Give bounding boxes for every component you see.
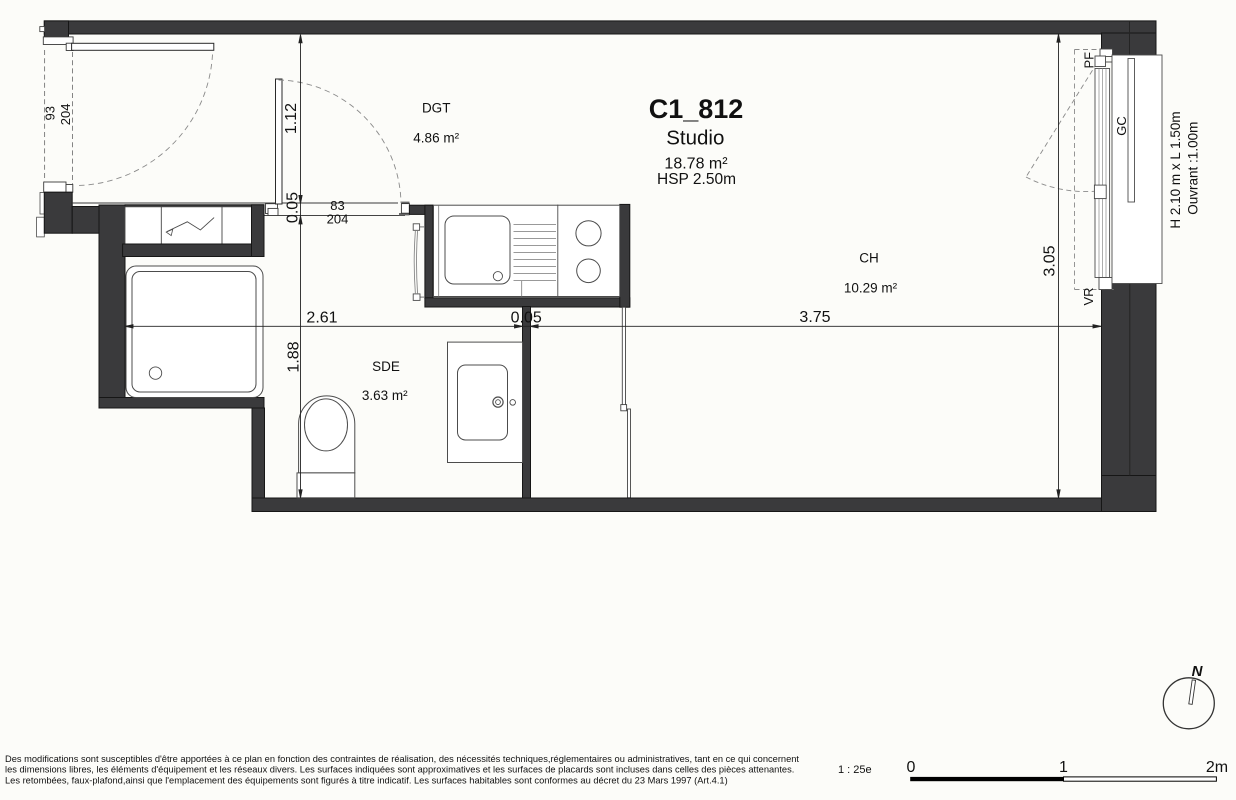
svg-text:Des modifications sont suscept: Des modifications sont susceptibles d'êt…: [5, 754, 799, 764]
svg-text:H 2.10 m x L 1.50m: H 2.10 m x L 1.50m: [1168, 111, 1183, 228]
svg-text:PF: PF: [1082, 52, 1097, 69]
svg-text:1.88: 1.88: [285, 341, 302, 372]
svg-text:0.05: 0.05: [285, 192, 302, 223]
svg-text:les dimensions libres, les élé: les dimensions libres, les éléments d'éq…: [5, 765, 794, 775]
svg-text:4.86 m²: 4.86 m²: [413, 131, 459, 146]
svg-text:1: 1: [1059, 759, 1068, 776]
svg-text:CH: CH: [859, 251, 879, 266]
svg-text:18.78 m²: 18.78 m²: [664, 155, 728, 172]
svg-text:Studio: Studio: [666, 127, 724, 150]
svg-text:2m: 2m: [1206, 759, 1228, 776]
svg-text:HSP 2.50m: HSP 2.50m: [657, 171, 736, 188]
svg-text:10.29 m²: 10.29 m²: [844, 281, 898, 296]
svg-text:2.61: 2.61: [306, 310, 337, 327]
svg-text:C1_812: C1_812: [649, 94, 744, 124]
svg-text:SDE: SDE: [372, 359, 400, 374]
svg-text:Les retombées, faux-plafond,ai: Les retombées, faux-plafond,ainsi que l'…: [5, 775, 728, 785]
svg-text:DGT: DGT: [422, 101, 451, 116]
svg-text:Ouvrant :1.00m: Ouvrant :1.00m: [1186, 122, 1201, 215]
svg-text:VR: VR: [1081, 287, 1096, 305]
svg-text:204: 204: [327, 212, 349, 227]
svg-text:0.05: 0.05: [511, 310, 542, 327]
svg-text:3.63 m²: 3.63 m²: [362, 388, 408, 403]
svg-text:1.12: 1.12: [283, 103, 300, 134]
svg-text:1 : 25e: 1 : 25e: [838, 764, 872, 776]
svg-text:GC: GC: [1114, 116, 1129, 136]
svg-text:N: N: [1192, 663, 1204, 680]
svg-text:93: 93: [43, 106, 58, 120]
svg-text:204: 204: [58, 104, 73, 126]
svg-text:3.75: 3.75: [799, 309, 830, 326]
svg-text:0: 0: [907, 759, 916, 776]
svg-text:3.05: 3.05: [1042, 245, 1059, 276]
